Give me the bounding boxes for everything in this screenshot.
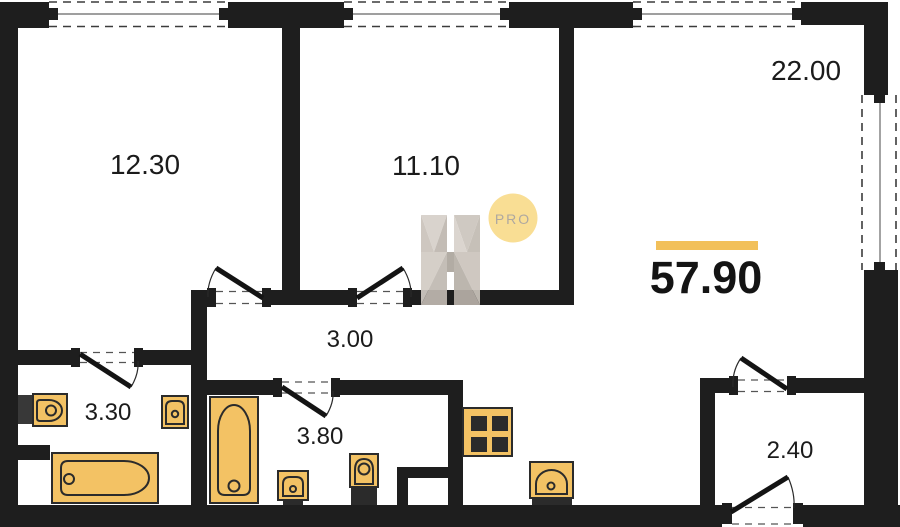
sink-icon-bathroom — [162, 396, 188, 428]
toilet-icon-wc — [350, 454, 378, 505]
bathtub-icon-bathroom — [52, 453, 158, 503]
room-area-label-wc: 3.80 — [297, 423, 344, 450]
wall-wc-right — [448, 380, 463, 505]
room-area-label-bedroom1: 12.30 — [110, 149, 180, 180]
window-icon-living-side — [858, 95, 900, 270]
window-icon-bedroom1 — [49, 0, 228, 28]
window-icon-bedroom2 — [344, 0, 509, 28]
wall-top-right — [801, 2, 864, 25]
wall-right-corner-block — [864, 2, 888, 95]
door-swing-icon-bedroom1 — [208, 268, 263, 304]
door-swing-icon-entry-inner — [733, 358, 787, 392]
window-icon-living — [633, 0, 801, 28]
room-area-label-hallway: 3.00 — [327, 326, 374, 353]
wall-between-bedrooms — [282, 28, 300, 305]
bathtub-icon-wc — [210, 397, 258, 503]
toilet-icon-bathroom — [33, 394, 67, 426]
accent-underline — [656, 241, 758, 250]
floor-plan: 12.30 11.10 22.00 3.00 3.30 3.80 2.40 57… — [0, 0, 900, 527]
watermark: PRO — [421, 194, 538, 306]
wall-wc-top-2 — [340, 380, 463, 395]
wall-entry-top-1 — [700, 378, 729, 393]
wall-hall-top-2 — [271, 290, 348, 305]
sink-icon-kitchen — [530, 462, 573, 505]
room-area-label-bathroom: 3.30 — [85, 399, 132, 426]
wall-bath-top-1 — [0, 350, 71, 365]
pro-badge-label: PRO — [495, 211, 531, 227]
wall-niche-left — [397, 478, 408, 505]
door-swing-icon-wc — [282, 382, 333, 416]
door-swing-icon-bathroom — [80, 353, 138, 388]
total-area-label: 57.90 — [650, 252, 763, 303]
wall-bedroom2-living — [559, 28, 574, 305]
stove-icon — [463, 408, 512, 456]
wall-top-left-corner — [0, 2, 49, 28]
wall-niche-top — [397, 467, 448, 478]
wall-bottom-right — [803, 505, 900, 527]
wall-left-outer — [0, 2, 18, 527]
room-area-label-living: 22.00 — [771, 55, 841, 86]
wall-top-pier-1 — [228, 2, 344, 28]
watermark-pro-badge: PRO — [489, 194, 538, 243]
wall-left-core — [191, 290, 207, 505]
wall-stub-bath — [18, 445, 50, 460]
door-swing-icon-entrance — [731, 477, 794, 524]
wall-bath-top-2 — [143, 350, 207, 365]
wall-top-pier-2 — [509, 2, 633, 28]
wall-wc-top-1 — [197, 380, 273, 395]
wall-right-lower — [864, 270, 898, 527]
floor-plan-page: 12.30 11.10 22.00 3.00 3.30 3.80 2.40 57… — [0, 0, 900, 527]
door-swing-icon-bedroom2 — [357, 268, 411, 304]
wall-bottom-left — [0, 505, 722, 527]
room-area-label-bedroom2: 11.10 — [392, 150, 460, 181]
wall-entry-left — [700, 378, 715, 527]
sink-icon-wc — [278, 471, 308, 505]
wall-entry-top-2 — [796, 378, 864, 393]
room-area-label-entry: 2.40 — [767, 437, 814, 464]
